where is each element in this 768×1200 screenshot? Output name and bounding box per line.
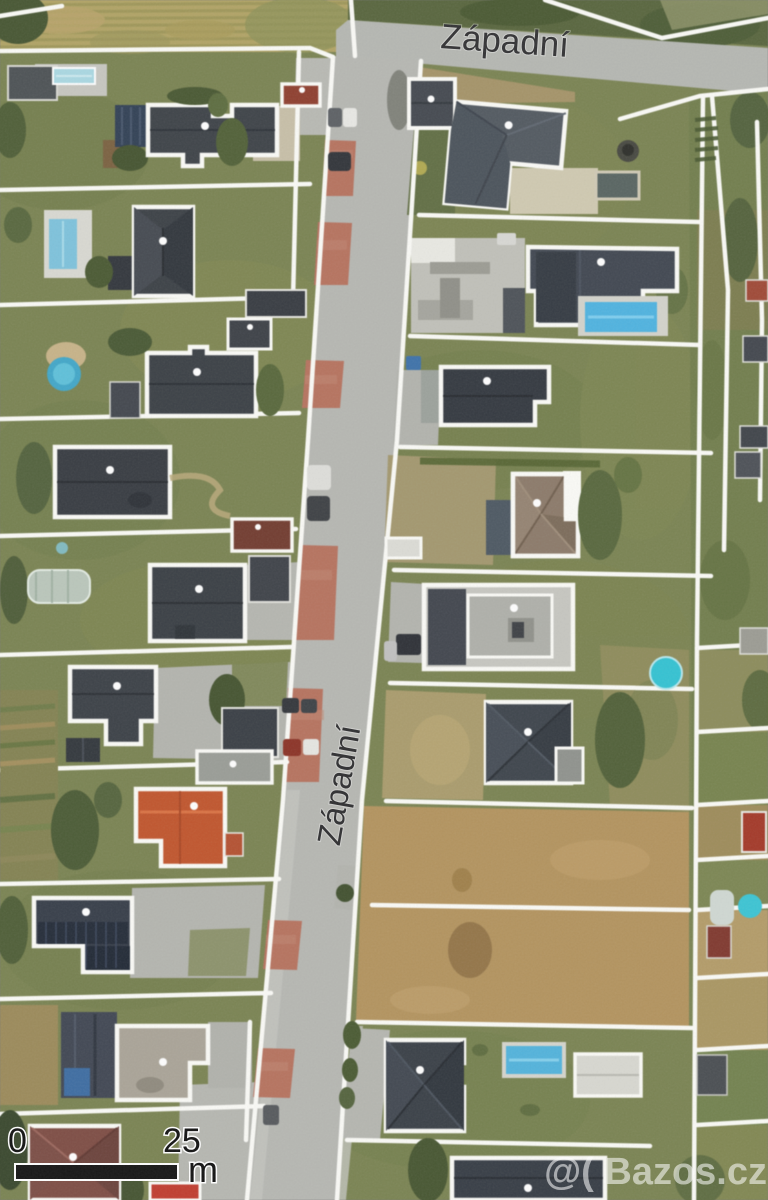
svg-text:@( Bazos.cz: @( Bazos.cz	[544, 1151, 767, 1193]
